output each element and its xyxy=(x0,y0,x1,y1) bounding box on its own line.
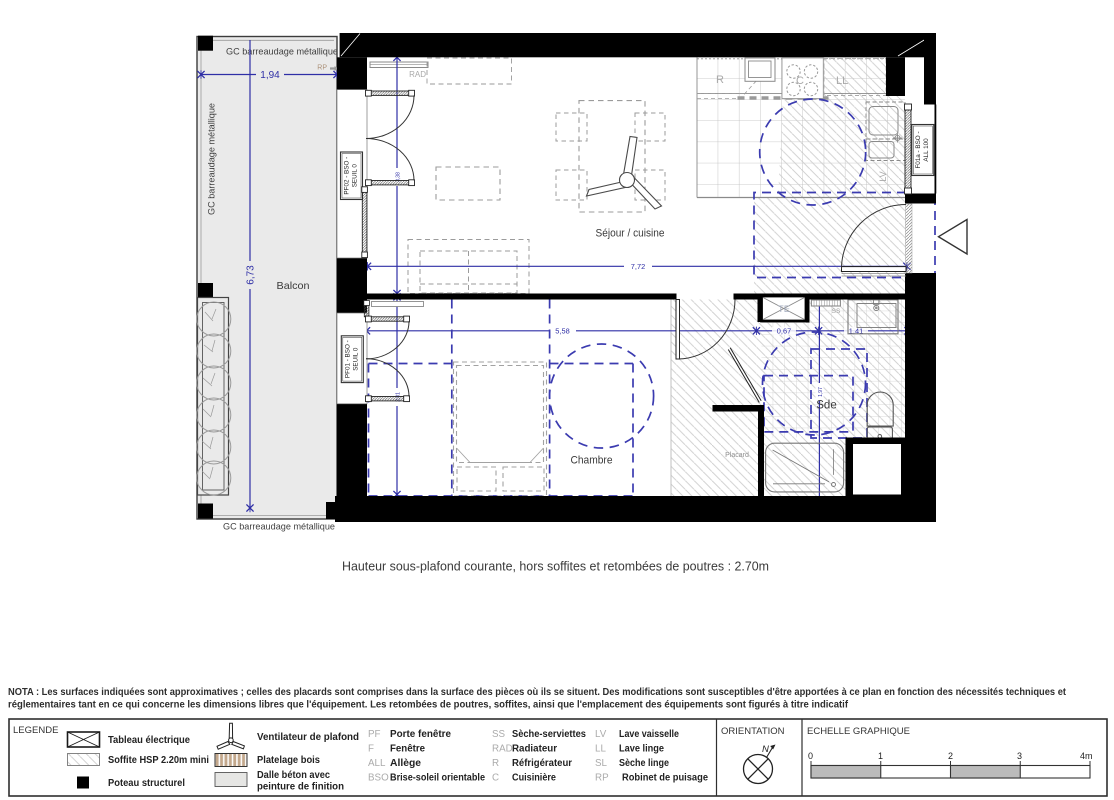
svg-text:Balcon: Balcon xyxy=(277,280,310,292)
svg-text:1,97: 1,97 xyxy=(818,387,824,397)
svg-text:SL: SL xyxy=(595,758,608,769)
svg-text:Hauteur sous-plafond courante,: Hauteur sous-plafond courante, hors soff… xyxy=(342,559,769,574)
svg-text:R: R xyxy=(716,74,724,86)
svg-text:BSO: BSO xyxy=(368,773,389,784)
svg-text:RP: RP xyxy=(595,773,609,784)
svg-text:Robinet de puisage: Robinet de puisage xyxy=(622,773,709,784)
svg-text:NOTA : Les surfaces indiquées: NOTA : Les surfaces indiquées sont appro… xyxy=(8,687,1067,698)
svg-text:LV: LV xyxy=(878,171,888,181)
svg-text:Réfrigérateur: Réfrigérateur xyxy=(512,758,572,769)
svg-text:GC barreaudage métallique: GC barreaudage métallique xyxy=(223,522,335,533)
svg-text:Placard: Placard xyxy=(725,452,749,459)
svg-text:Brise-soleil orientable: Brise-soleil orientable xyxy=(390,773,486,784)
svg-text:réglementaires tant en ce qui: réglementaires tant en ce qui concerne l… xyxy=(8,700,849,711)
svg-text:SEUIL 0: SEUIL 0 xyxy=(352,347,359,371)
svg-text:PF02 - BSO -: PF02 - BSO - xyxy=(344,157,351,195)
svg-text:Fenêtre: Fenêtre xyxy=(390,744,426,755)
svg-text:LV: LV xyxy=(595,729,607,740)
svg-text:1,94: 1,94 xyxy=(260,70,280,81)
svg-text:LEGENDE: LEGENDE xyxy=(13,725,58,736)
svg-text:RP: RP xyxy=(317,65,327,72)
svg-text:Porte fenêtre: Porte fenêtre xyxy=(390,729,452,740)
svg-text:RAD: RAD xyxy=(492,744,513,755)
svg-text:0,67: 0,67 xyxy=(777,327,791,336)
svg-text:ALL 100: ALL 100 xyxy=(923,138,930,162)
svg-text:Soffite HSP 2.20m mini: Soffite HSP 2.20m mini xyxy=(108,755,209,766)
svg-text:2: 2 xyxy=(948,751,953,761)
svg-text:PF01 - BSO -: PF01 - BSO - xyxy=(344,340,351,378)
svg-text:Chambre: Chambre xyxy=(571,455,613,467)
svg-text:Sde: Sde xyxy=(816,400,836,412)
svg-text:Sèche-serviettes: Sèche-serviettes xyxy=(512,729,587,740)
svg-text:Dalle béton avec: Dalle béton avec xyxy=(257,770,330,781)
svg-text:4m: 4m xyxy=(1080,751,1093,761)
svg-text:Sèche linge: Sèche linge xyxy=(619,758,670,769)
svg-text:RAD: RAD xyxy=(409,70,426,79)
svg-text:GC barreaudage métallique: GC barreaudage métallique xyxy=(207,103,218,215)
svg-text:TE: TE xyxy=(778,304,790,315)
svg-text:ORIENTATION: ORIENTATION xyxy=(721,726,785,737)
svg-text:Lave linge: Lave linge xyxy=(619,744,665,755)
svg-text:7,72: 7,72 xyxy=(631,262,645,271)
svg-text:SS: SS xyxy=(832,308,841,315)
svg-text:SS: SS xyxy=(492,729,506,740)
svg-text:Séjour / cuisine: Séjour / cuisine xyxy=(596,228,665,240)
svg-text:3: 3 xyxy=(1017,751,1022,761)
svg-text:Radiateur: Radiateur xyxy=(512,744,557,755)
svg-text:6,73: 6,73 xyxy=(246,265,257,285)
svg-text:Cuisinière: Cuisinière xyxy=(512,773,557,784)
svg-text:peinture de finition: peinture de finition xyxy=(257,782,344,793)
svg-text:ALL: ALL xyxy=(368,758,386,769)
svg-text:1: 1 xyxy=(878,751,883,761)
svg-text:C: C xyxy=(492,773,499,784)
svg-text:C: C xyxy=(796,75,804,87)
svg-text:LL: LL xyxy=(836,75,848,87)
svg-text:Ventilateur de plafond: Ventilateur de plafond xyxy=(257,732,359,743)
svg-text:N: N xyxy=(762,744,769,755)
svg-text:Poteau structurel: Poteau structurel xyxy=(108,778,185,789)
svg-text:F01a - BSO -: F01a - BSO - xyxy=(915,131,922,168)
svg-text:PF: PF xyxy=(368,729,381,740)
svg-text:R: R xyxy=(492,758,499,769)
svg-text:Allège: Allège xyxy=(390,758,422,769)
svg-text:Platelage bois: Platelage bois xyxy=(257,755,320,766)
svg-text:5,58: 5,58 xyxy=(555,327,569,336)
svg-text:Lave vaisselle: Lave vaisselle xyxy=(619,729,679,740)
svg-text:GC barreaudage métallique: GC barreaudage métallique xyxy=(226,47,338,58)
svg-text:LL: LL xyxy=(595,744,606,755)
svg-text:F: F xyxy=(368,744,374,755)
svg-text:ECHELLE GRAPHIQUE: ECHELLE GRAPHIQUE xyxy=(807,726,910,737)
svg-text:Tableau électrique: Tableau électrique xyxy=(108,735,190,746)
svg-text:SEUIL 0: SEUIL 0 xyxy=(352,164,359,188)
svg-text:0: 0 xyxy=(808,751,813,761)
